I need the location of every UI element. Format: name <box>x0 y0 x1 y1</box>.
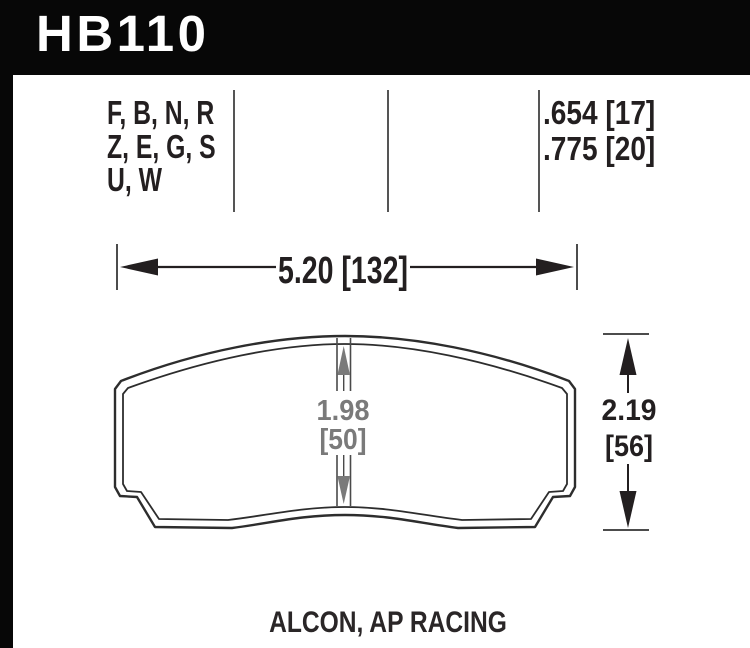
center-thickness-dimension: 1.98 [50] <box>317 338 370 506</box>
center-dimension-value: 1.98 <box>317 395 370 427</box>
right-arrowhead-icon <box>536 259 574 276</box>
height-dimension-bracket: [56] <box>605 430 653 463</box>
left-arrowhead-icon <box>120 259 158 276</box>
pad-technical-drawing: 5.20 [132] 1.98 [50] 2.19 [56] <box>0 0 750 648</box>
height-dimension-value: 2.19 <box>602 394 657 427</box>
down-arrowhead-icon <box>337 476 350 504</box>
width-dimension-label: 5.20 [132] <box>278 250 408 292</box>
up-arrowhead-icon <box>337 346 350 375</box>
caliper-applications: ALCON, AP RACING <box>269 606 507 640</box>
width-dimension: 5.20 [132] <box>117 244 577 292</box>
height-dimension: 2.19 [56] <box>602 334 657 530</box>
center-dimension-bracket: [50] <box>320 424 367 456</box>
up-arrowhead-icon <box>620 338 637 375</box>
brake-pad-spec-sheet: HB110 F, B, N, R Z, E, G, S U, W .654 [1… <box>0 0 750 648</box>
down-arrowhead-icon <box>620 491 637 528</box>
